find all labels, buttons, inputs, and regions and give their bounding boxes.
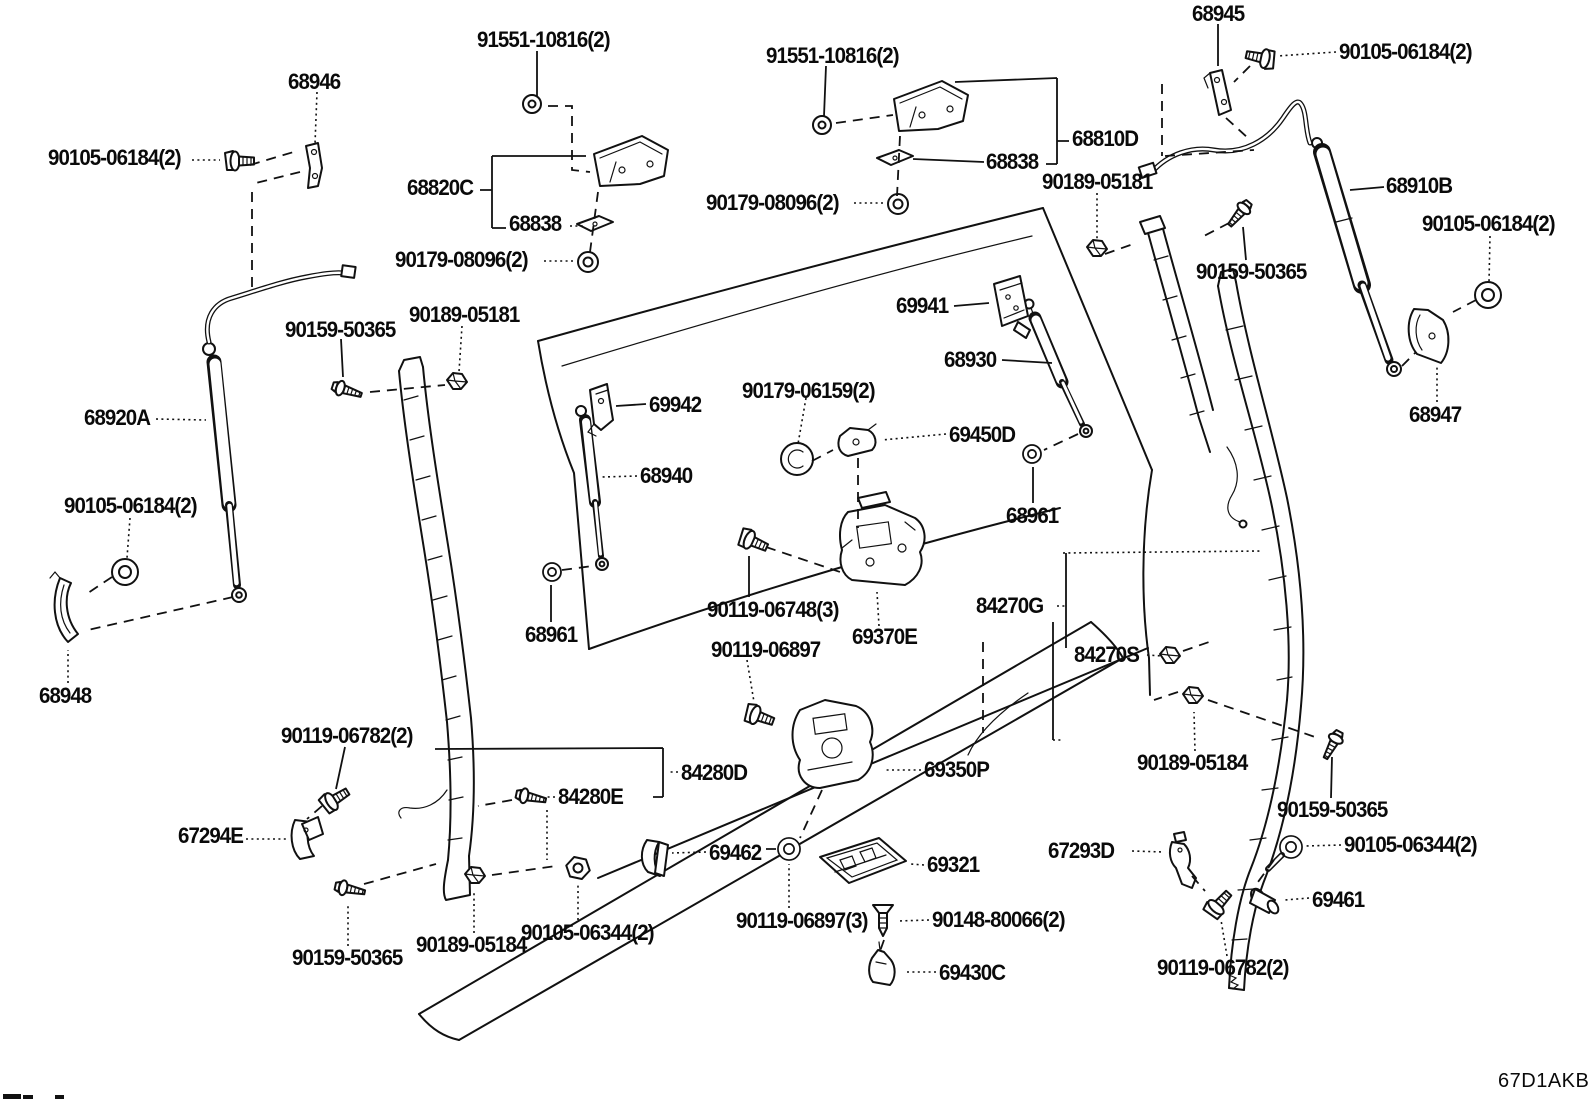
part-number-label: 90119-06748(3) <box>707 599 838 621</box>
part-number-label: 91551-10816(2) <box>477 29 610 51</box>
part-number-label: 91551-10816(2) <box>766 45 899 67</box>
part-number-label: 69350P <box>924 759 989 781</box>
part-number-label: 90105-06184(2) <box>48 147 181 169</box>
part-number-label: 69941 <box>896 295 948 317</box>
part-number-label: 90105-06184(2) <box>1422 213 1555 235</box>
part-number-label: 90105-06184(2) <box>1339 41 1472 63</box>
part-number-label: 90105-06344(2) <box>1344 834 1477 856</box>
part-number-label: 90179-06159(2) <box>742 380 875 402</box>
part-number-label: 68947 <box>1409 404 1461 426</box>
part-number-label: 68948 <box>39 685 91 707</box>
part-number-label: 90179-08096(2) <box>395 249 528 271</box>
part-number-label: 84270S <box>1074 644 1139 666</box>
part-number-label: 67294E <box>178 825 243 847</box>
part-number-label: 90119-06782(2) <box>281 725 412 747</box>
part-number-label: 69450D <box>949 424 1015 446</box>
labels-layer: 91551-10816(2)6894690105-06184(2)68820C6… <box>0 0 1592 1099</box>
part-number-label: 68961 <box>525 624 577 646</box>
part-number-label: 90148-80066(2) <box>932 909 1065 931</box>
part-number-label: 90159-50365 <box>285 319 395 341</box>
part-number-label: 68838 <box>509 213 561 235</box>
parts-diagram-page: 91551-10816(2)6894690105-06184(2)68820C6… <box>0 0 1592 1099</box>
part-number-label: 67293D <box>1048 840 1114 862</box>
part-number-label: 90105-06344(2) <box>521 922 654 944</box>
part-number-label: 68945 <box>1192 3 1244 25</box>
part-number-label: 90179-08096(2) <box>706 192 839 214</box>
part-number-label: 69430C <box>939 962 1005 984</box>
part-number-label: 68910B <box>1386 175 1452 197</box>
part-number-label: 90189-05181 <box>1042 171 1152 193</box>
part-number-label: 84280E <box>558 786 623 808</box>
part-number-label: 90119-06897 <box>711 639 820 661</box>
part-number-label: 68961 <box>1006 505 1058 527</box>
part-number-label: 68940 <box>640 465 692 487</box>
part-number-label: 90189-05181 <box>409 304 519 326</box>
part-number-label: 68930 <box>944 349 996 371</box>
part-number-label: 84270G <box>976 595 1043 617</box>
part-number-label: 90105-06184(2) <box>64 495 197 517</box>
part-number-label: 84280D <box>681 762 747 784</box>
sheet-code: 67D1AKB <box>1498 1071 1589 1091</box>
part-number-label: 69942 <box>649 394 701 416</box>
part-number-label: 68838 <box>986 151 1038 173</box>
part-number-label: 68920A <box>84 407 150 429</box>
part-number-label: 90119-06897(3) <box>736 910 867 932</box>
part-number-label: 68820C <box>407 177 473 199</box>
part-number-label: 90189-05184 <box>416 934 526 956</box>
part-number-label: 90159-50365 <box>1196 261 1306 283</box>
part-number-label: 68946 <box>288 71 340 93</box>
part-number-label: 90119-06782(2) <box>1157 957 1288 979</box>
part-number-label: 69321 <box>927 854 979 876</box>
part-number-label: 90159-50365 <box>1277 799 1387 821</box>
part-number-label: 69461 <box>1312 889 1364 911</box>
part-number-label: 90189-05184 <box>1137 752 1247 774</box>
part-number-label: 69370E <box>852 626 917 648</box>
part-number-label: 69462 <box>709 842 761 864</box>
part-number-label: 90159-50365 <box>292 947 402 969</box>
part-number-label: 68810D <box>1072 128 1138 150</box>
